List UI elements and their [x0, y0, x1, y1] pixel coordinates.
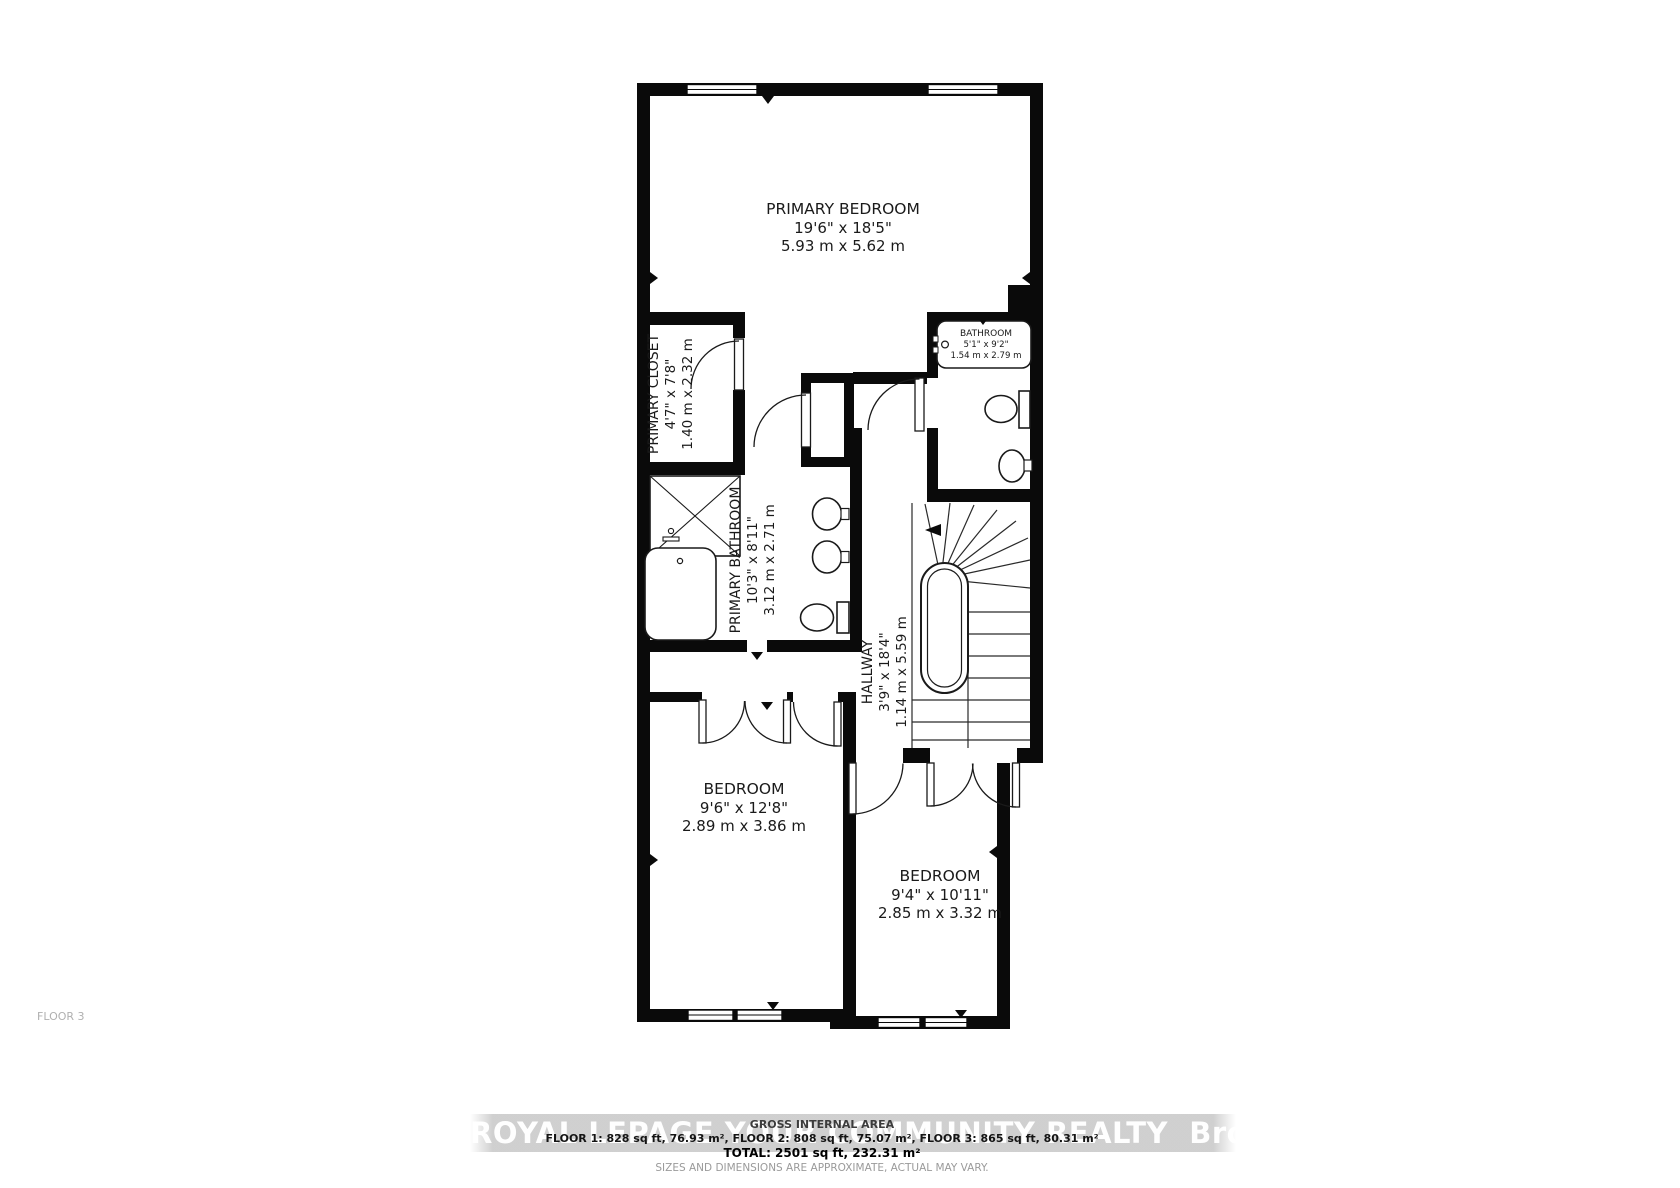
- door-arc: [703, 701, 745, 743]
- shower-valve-icon: [668, 528, 673, 533]
- sink-faucet-icon: [841, 509, 849, 520]
- bathroom-imperial: 5'1" x 9'2": [963, 340, 1008, 350]
- sink-faucet-icon: [1024, 460, 1032, 471]
- tub-drain-icon: [677, 558, 682, 563]
- sink-icon: [999, 450, 1025, 482]
- primary-bathroom-metric: 3.12 m x 2.71 m: [762, 504, 778, 616]
- door-leaf: [699, 700, 706, 743]
- toilet-tank-icon: [1019, 391, 1030, 428]
- disclaimer-line: SIZES AND DIMENSIONS ARE APPROXIMATE, AC…: [422, 1162, 1222, 1174]
- bedroom-left-imperial: 9'6" x 12'8": [700, 799, 788, 817]
- door-leaf: [1013, 763, 1020, 807]
- sink-icon: [813, 498, 842, 530]
- gross-internal-area-heading: GROSS INTERNAL AREA: [422, 1118, 1222, 1131]
- arrow-icon: [650, 272, 658, 284]
- bathroom-label: BATHROOM: [960, 329, 1012, 339]
- shower-valve-icon: [663, 537, 679, 541]
- hallway-metric: 1.14 m x 5.59 m: [894, 616, 910, 728]
- door-leaf: [927, 763, 934, 806]
- primary-bedroom-label: PRIMARY BEDROOM: [766, 200, 920, 218]
- tub-faucet-icon: [933, 336, 938, 342]
- bedroom-left-label: BEDROOM: [704, 780, 785, 798]
- arrow-icon: [761, 702, 773, 710]
- door-arc: [691, 341, 739, 389]
- fixtures: [645, 321, 1032, 640]
- door-leaf: [834, 702, 841, 746]
- tub-faucet-icon: [942, 341, 949, 348]
- sink-icon: [813, 541, 842, 573]
- hallway-imperial: 3'9" x 18'4": [877, 632, 893, 711]
- door-leaf: [735, 339, 744, 390]
- door-arc: [853, 764, 904, 815]
- primary-closet-metric: 1.40 m x 2.32 m: [680, 338, 696, 450]
- primary-bedroom-imperial: 19'6" x 18'5": [794, 219, 892, 237]
- floor-plan-page: PRIMARY BEDROOM 19'6" x 18'5" 5.93 m x 5…: [0, 0, 1680, 1188]
- door-arc: [931, 764, 974, 807]
- bedroom-right-label: BEDROOM: [900, 867, 981, 885]
- stair-direction-arrow: [925, 524, 941, 536]
- arrow-icon: [767, 1002, 779, 1010]
- floor-plan-svg: PRIMARY BEDROOM 19'6" x 18'5" 5.93 m x 5…: [0, 0, 1680, 1188]
- staircase: [912, 503, 1030, 748]
- primary-closet-label: PRIMARY CLOSET: [646, 333, 662, 454]
- toilet-tank-icon: [837, 602, 849, 633]
- total-area-line: TOTAL: 2501 sq ft, 232.31 m²: [422, 1146, 1222, 1160]
- toilet-icon: [801, 604, 834, 631]
- floor-number-label: FLOOR 3: [37, 1010, 85, 1023]
- sink-faucet-icon: [841, 552, 849, 563]
- bathroom-metric: 1.54 m x 2.79 m: [950, 351, 1021, 361]
- floor-areas-line: FLOOR 1: 828 sq ft, 76.93 m², FLOOR 2: 8…: [422, 1132, 1222, 1145]
- tub-faucet-icon: [933, 347, 938, 353]
- arrow-icon: [751, 652, 763, 660]
- door-leaf: [849, 763, 856, 814]
- arrow-icon: [1022, 272, 1030, 284]
- arrow-icon: [989, 846, 997, 858]
- primary-bathroom-imperial: 10'3" x 8'11": [745, 516, 761, 604]
- arrow-icon: [762, 96, 774, 104]
- door-leaf: [784, 700, 791, 743]
- bedroom-left-metric: 2.89 m x 3.86 m: [682, 817, 806, 835]
- toilet-icon: [985, 396, 1017, 423]
- bedroom-right-metric: 2.85 m x 3.32 m: [878, 904, 1002, 922]
- door-leaf: [915, 378, 924, 431]
- door-arc: [794, 702, 838, 746]
- primary-bedroom-metric: 5.93 m x 5.62 m: [781, 237, 905, 255]
- door-arc: [754, 395, 806, 447]
- hallway-label: HALLWAY: [860, 639, 876, 704]
- door-arc: [868, 379, 920, 430]
- shaft-interior: [811, 383, 844, 457]
- primary-bathroom-label: PRIMARY BATHROOM: [728, 487, 744, 634]
- primary-closet-imperial: 4'7" x 7'8": [663, 359, 679, 430]
- arrow-icon: [650, 854, 658, 866]
- bedroom-right-imperial: 9'4" x 10'11": [891, 886, 989, 904]
- door-leaf: [802, 393, 811, 447]
